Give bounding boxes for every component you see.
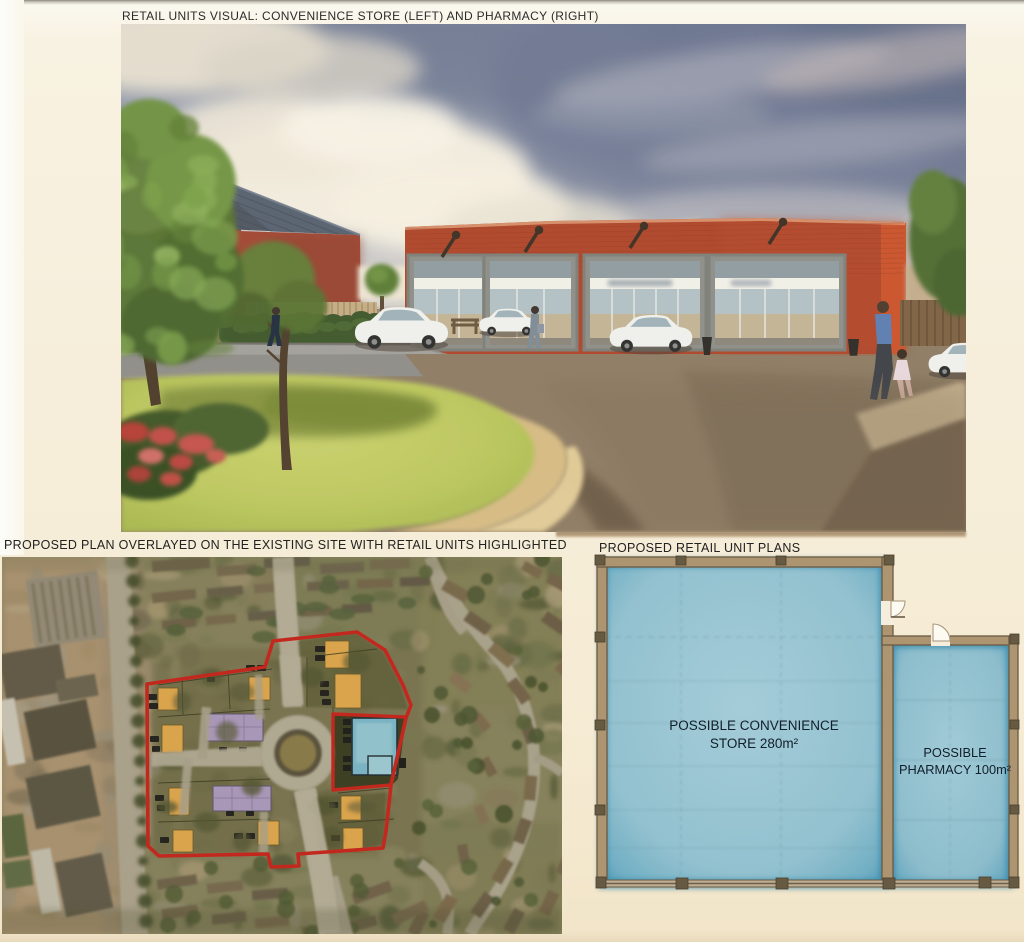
svg-text:PHARMACY 100m²: PHARMACY 100m² xyxy=(899,762,1012,777)
svg-text:STORE 280m²: STORE 280m² xyxy=(710,736,799,751)
svg-text:POSSIBLE CONVENIENCE: POSSIBLE CONVENIENCE xyxy=(669,718,839,733)
svg-text:POSSIBLE: POSSIBLE xyxy=(923,745,986,760)
